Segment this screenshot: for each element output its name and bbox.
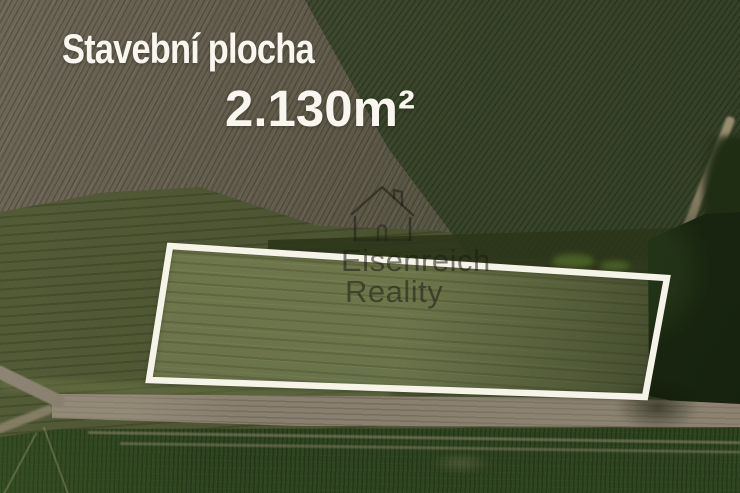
house-icon [340,180,425,245]
watermark-brand-line2: Reality [345,276,443,307]
area-value: 2.130m² [225,82,415,136]
watermark-brand-line1: Eisenreich [341,245,491,276]
aerial-photo-scene: Eisenreich Reality Stavební plocha 2.130… [0,0,740,493]
headline-title: Stavební plocha [62,28,314,70]
